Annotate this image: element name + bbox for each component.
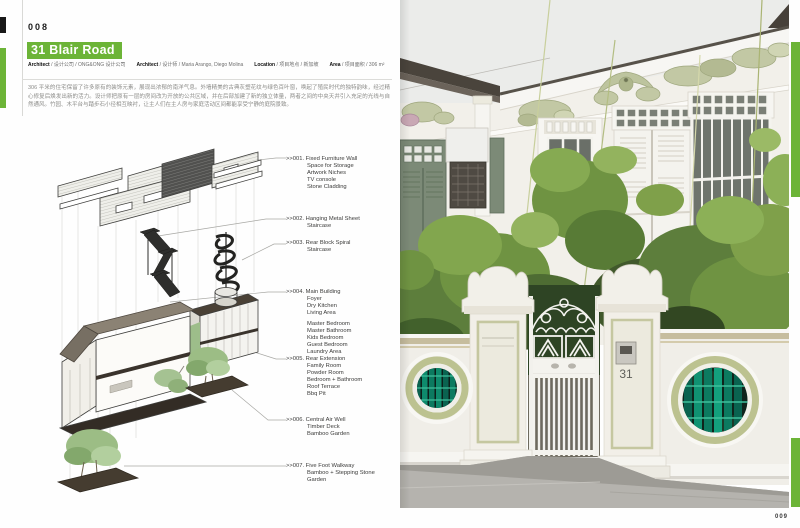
house-number: 31	[619, 367, 633, 381]
callout-item: >>001. Fixed Furniture WallSpace for Sto…	[286, 156, 398, 191]
project-meta-row: Architect / 设计公司 / ONG&ONG 设计公司Architect…	[28, 61, 392, 68]
intro-paragraph: 306 平米的住宅保留了许多原有的装饰元素，展现出浓郁的南洋气息。外墙精美的古典…	[28, 84, 390, 110]
project-title: 31 Blair Road	[27, 42, 122, 59]
intro-top-rule	[22, 79, 392, 80]
right-edge-green-bar-bottom	[791, 438, 800, 507]
book-spread: 008 31 Blair Road Architect / 设计公司 / ONG…	[0, 0, 800, 528]
meta-item: Architect / 设计公司 / ONG&ONG 设计公司	[28, 61, 126, 68]
facade-photo-art: 31	[400, 0, 789, 508]
column-hairline	[22, 0, 23, 116]
spiral-staircase	[215, 232, 238, 294]
right-edge-green-bar-top	[791, 42, 800, 197]
metal-sheet-staircase	[140, 228, 180, 297]
meta-item: Area / 项目面积 / 306 m²	[329, 61, 384, 68]
air-conditioner-unit	[446, 128, 504, 213]
callout-number: >>003.	[286, 240, 306, 246]
callout-item: >>002. Hanging Metal SheetStaircase	[286, 216, 398, 230]
callout-number: >>006.	[286, 417, 306, 423]
left-edge-black-bar	[0, 17, 6, 33]
walkway-bamboo-garden	[58, 429, 138, 492]
circular-window-right	[669, 354, 761, 446]
callout-number: >>002.	[286, 216, 306, 222]
meta-item: Architect / 设计师 / Maria Arango, Diego Mo…	[137, 61, 244, 68]
callout-item: >>007. Five Foot WalkwayBamboo + Steppin…	[286, 463, 398, 484]
callout-number: >>001.	[286, 156, 306, 162]
fixed-furniture-wall-panels	[58, 149, 262, 226]
callout-item: >>005. Rear ExtensionFamily RoomPowder R…	[286, 356, 398, 398]
callout-item: >>006. Central Air WellTimber DeckBamboo…	[286, 417, 398, 438]
circular-window-left	[403, 354, 471, 422]
callout-item: >>004. Main BuildingFoyerDry KitchenLivi…	[286, 289, 398, 356]
meta-item: Location / 项目地点 / 新加坡	[254, 61, 318, 68]
exploded-axonometric-diagram	[40, 140, 290, 510]
callout-number: >>005.	[286, 356, 306, 362]
gate-pillar-right: 31	[594, 265, 670, 479]
gate-pillar-left	[460, 267, 536, 471]
page-number-right: 009	[775, 514, 788, 520]
left-edge-green-bar	[0, 48, 6, 108]
callout-item: >>003. Rear Block SpiralStaircase	[286, 240, 398, 254]
page-number-left: 008	[28, 22, 49, 32]
callout-number: >>007.	[286, 463, 306, 469]
facade-photograph: 31	[400, 0, 789, 508]
main-building-section	[60, 302, 206, 436]
callout-number: >>004.	[286, 289, 306, 295]
